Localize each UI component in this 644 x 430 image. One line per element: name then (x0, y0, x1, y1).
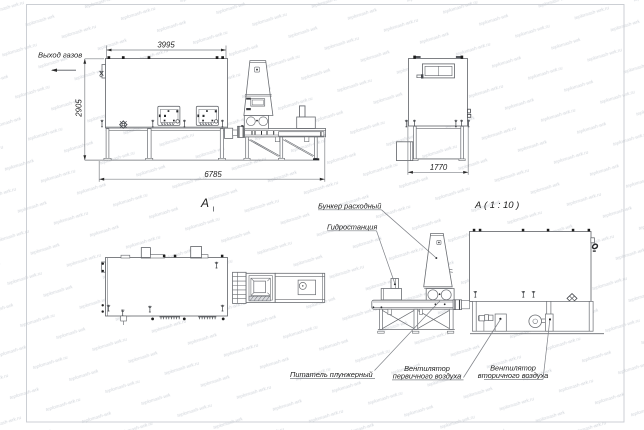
svg-text:Гидростанция: Гидростанция (327, 223, 377, 232)
svg-text:6785: 6785 (204, 170, 222, 179)
svg-text:1770: 1770 (430, 163, 448, 172)
svg-text:вторичного воздуха: вторичного воздуха (478, 371, 548, 380)
svg-text:Бункер расходный: Бункер расходный (318, 202, 381, 211)
svg-text:А ( 1 : 10 ): А ( 1 : 10 ) (474, 200, 519, 211)
svg-text:первичного воздуха: первичного воздуха (393, 372, 461, 381)
svg-text:3995: 3995 (157, 41, 175, 50)
svg-text:Выход газов: Выход газов (38, 51, 82, 60)
svg-text:А: А (200, 196, 209, 210)
svg-text:Питатель плунжерный: Питатель плунжерный (290, 370, 373, 379)
svg-text:2905: 2905 (75, 99, 84, 118)
